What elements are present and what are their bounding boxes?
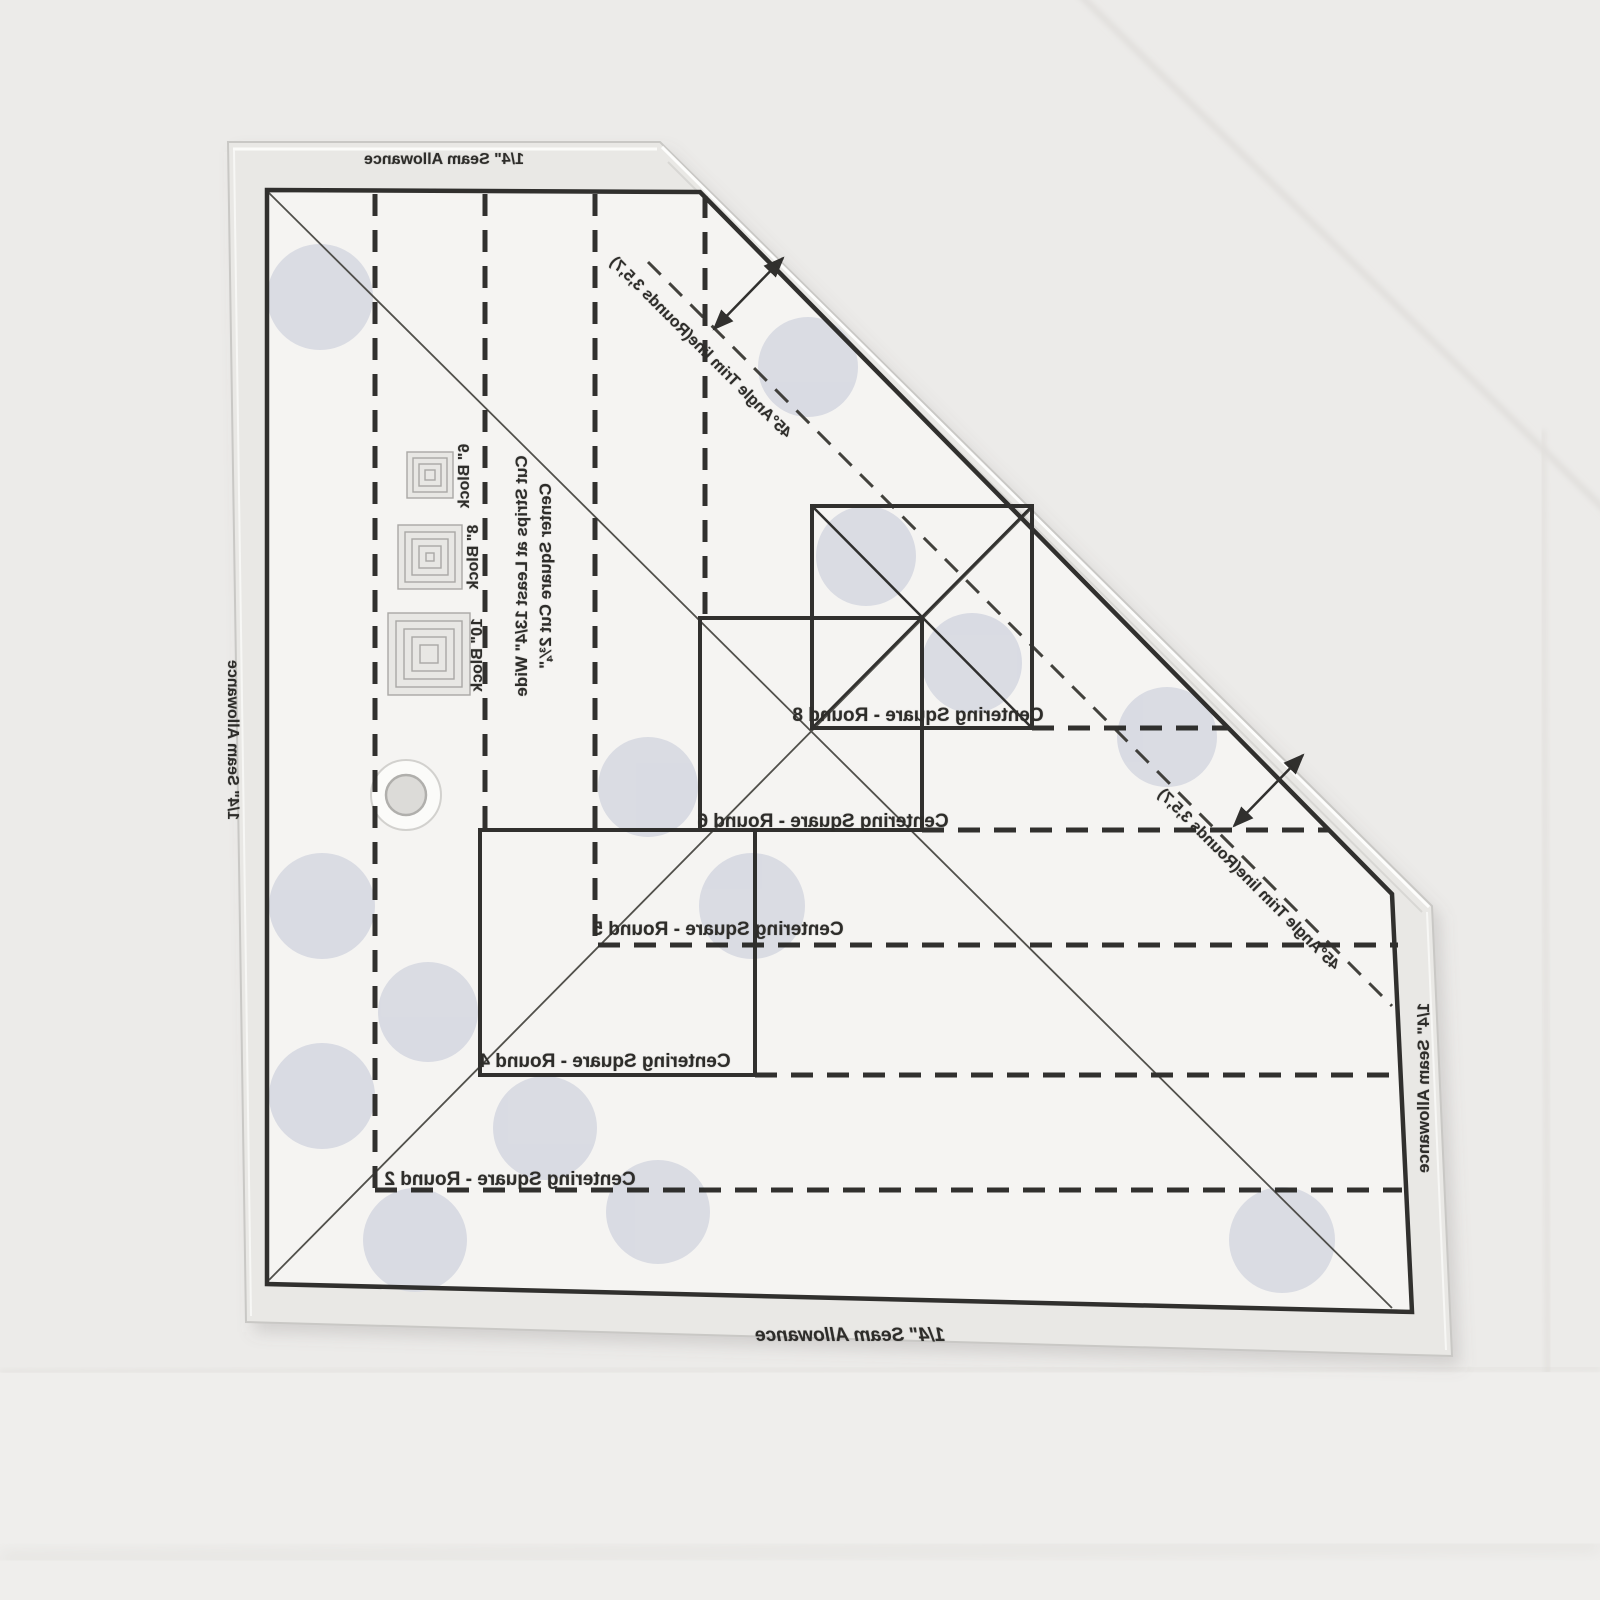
seam-allowance-label-top: 1/4" Seam Allowance <box>364 151 524 169</box>
grip-dot <box>816 506 916 606</box>
grip-dot <box>493 1076 597 1180</box>
quilting-ruler-photo: { "ruler": { "type_note": "transparent l… <box>0 0 1600 1600</box>
seam-allowance-label-right: 1/4" Seam Allowance <box>1414 1003 1434 1173</box>
paper-bottom-band <box>0 1372 1600 1600</box>
log-cabin-block-icon-8 <box>398 525 462 589</box>
log-cabin-block-icon-10 <box>388 613 470 695</box>
log-cabin-block-icon-6 <box>407 452 453 498</box>
instruction-cut-strips: Cut Strips at Least 13/4" Wide <box>512 455 532 696</box>
block-size-label-8: 8" Block <box>465 525 483 590</box>
grip-dot <box>267 244 373 350</box>
centering-square-label-round8: Centering Square - Round 8 <box>792 705 1043 727</box>
grip-dot <box>378 962 478 1062</box>
centering-square-label-round5: Centering Square - Round 5 <box>592 919 843 941</box>
grip-dot <box>269 1043 375 1149</box>
grip-dot <box>269 853 375 959</box>
instruction-center-square: Center Square Cut 2¾" <box>536 483 556 669</box>
seam-allowance-label-left: 1/4" Seam Allowance <box>223 660 241 820</box>
grip-dot <box>598 737 698 837</box>
seam-allowance-label-bottom: 1/4" Seam Allowance <box>755 1325 945 1347</box>
centering-square-label-round4: Centering Square - Round 4 <box>479 1051 730 1073</box>
grip-dot <box>363 1188 467 1292</box>
hanging-hole <box>371 760 441 830</box>
block-size-label-6: 6" Block <box>456 444 474 509</box>
paper-edge-line <box>0 1368 1600 1372</box>
centering-square-label-round2: Centering Square - Round 2 <box>384 1169 635 1191</box>
grip-dot <box>758 317 858 417</box>
centering-square-label-round6: Centering Square - Round 6 <box>697 811 948 833</box>
grip-dot <box>922 613 1022 713</box>
grip-dot <box>1229 1187 1335 1293</box>
paper-crease-topright <box>1075 0 1600 520</box>
block-size-label-10: 10" Block <box>469 618 487 691</box>
